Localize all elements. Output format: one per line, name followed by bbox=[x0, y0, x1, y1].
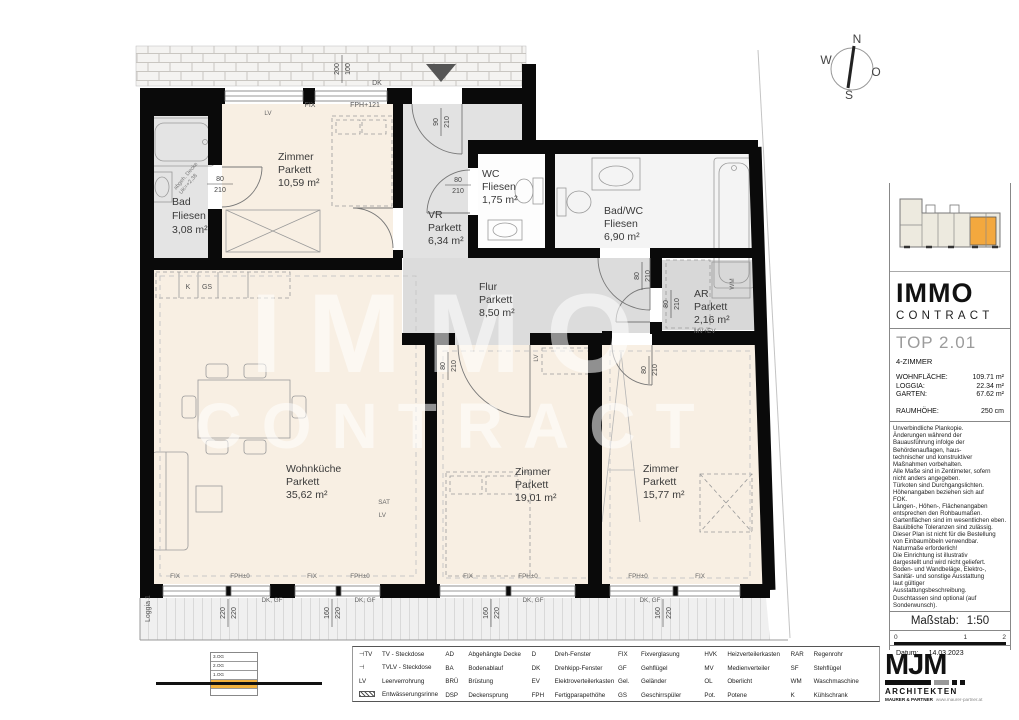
svg-text:100: 100 bbox=[345, 63, 352, 75]
svg-text:19,01 m²: 19,01 m² bbox=[515, 492, 557, 504]
svg-text:10,59 m²: 10,59 m² bbox=[278, 177, 320, 189]
highlighted-unit bbox=[970, 217, 996, 245]
architect-url: www.maurer-partner.at bbox=[936, 697, 982, 702]
svg-text:220: 220 bbox=[666, 607, 673, 619]
scale-label: Maßstab: bbox=[911, 615, 959, 627]
label-geschirrspueler: GS bbox=[202, 284, 212, 291]
label-sat: SAT bbox=[378, 499, 390, 506]
svg-text:210: 210 bbox=[674, 298, 681, 310]
svg-text:210: 210 bbox=[444, 116, 451, 128]
compass-south: S bbox=[845, 88, 853, 102]
unit-type: 4-ZIMMER bbox=[896, 357, 1004, 366]
legend-col-1: ⊣TVTV - Steckdose ⊣TVLV - Steckdose LVLe… bbox=[359, 651, 445, 699]
svg-text:FIX: FIX bbox=[170, 573, 181, 580]
svg-text:1,75 m²: 1,75 m² bbox=[482, 194, 518, 206]
architect-partner-line: MAURER & PARTNERwww.maurer-partner.at bbox=[885, 697, 1017, 702]
svg-text:Fliesen: Fliesen bbox=[482, 181, 516, 193]
svg-text:35,62 m²: 35,62 m² bbox=[286, 489, 328, 501]
svg-text:160: 160 bbox=[324, 607, 331, 619]
svg-text:220: 220 bbox=[494, 607, 501, 619]
architect-block: MJM ARCHITEKTEN MAURER & PARTNERwww.maur… bbox=[885, 652, 1017, 702]
svg-text:Parkett: Parkett bbox=[479, 294, 512, 306]
immo-contract-logo: IMMO CONTRACT bbox=[890, 272, 1010, 328]
room-label-badwc: Bad/WC Fliesen 6,90 m² bbox=[604, 205, 644, 243]
stat-raumhoehe: RAUMHÖHE: 250 cm bbox=[896, 408, 1004, 417]
label-lv-3: LV bbox=[533, 354, 540, 362]
compass-east: O bbox=[871, 65, 880, 79]
stat-wohnflaeche: WOHNFLÄCHE: 109.71 m² bbox=[896, 374, 1004, 383]
floor-row-3og: 3.OG bbox=[211, 653, 257, 662]
floor-row-1og: 1.OG bbox=[211, 671, 257, 680]
svg-text:220: 220 bbox=[220, 607, 227, 619]
svg-text:Parkett: Parkett bbox=[278, 164, 311, 176]
svg-text:WC: WC bbox=[482, 168, 500, 180]
label-fix-top: FIX bbox=[305, 102, 316, 109]
svg-text:160: 160 bbox=[655, 607, 662, 619]
abbreviation-legend: ⊣TVTV - Steckdose ⊣TVLV - Steckdose LVLe… bbox=[352, 646, 880, 702]
legend-col-5: HVKHeizverteilerkasten MVMedienverteiler… bbox=[704, 651, 790, 699]
svg-text:Parkett: Parkett bbox=[694, 301, 727, 313]
svg-text:VR: VR bbox=[428, 209, 443, 221]
floorplan-page: IMMO CONTRACT Zimmer Parkett 10,59 m² Ba… bbox=[0, 0, 1019, 720]
svg-text:Zimmer: Zimmer bbox=[515, 466, 551, 478]
svg-text:2,16 m²: 2,16 m² bbox=[694, 314, 730, 326]
logo-contract: CONTRACT bbox=[896, 310, 1006, 322]
site-plan-thumbnail bbox=[890, 183, 1010, 272]
svg-text:80: 80 bbox=[440, 362, 447, 370]
scale-box: Maßstab: 1:50 bbox=[890, 611, 1010, 631]
svg-text:AR: AR bbox=[694, 288, 709, 300]
svg-text:Parkett: Parkett bbox=[428, 222, 461, 234]
svg-text:90: 90 bbox=[433, 118, 440, 126]
label-kuehlschrank: K bbox=[186, 284, 191, 291]
label-lv-2: LV bbox=[379, 512, 387, 519]
svg-text:160: 160 bbox=[483, 607, 490, 619]
svg-text:Bad/WC: Bad/WC bbox=[604, 205, 644, 217]
label-loggia: Loggia 1 bbox=[145, 595, 152, 622]
floor-row-kg bbox=[211, 689, 257, 695]
svg-text:DK, GF: DK, GF bbox=[523, 597, 544, 604]
svg-text:Parkett: Parkett bbox=[286, 476, 319, 488]
svg-text:FPH±0: FPH±0 bbox=[350, 573, 370, 580]
scale-value: 1:50 bbox=[967, 615, 989, 627]
svg-text:3,08 m²: 3,08 m² bbox=[172, 224, 208, 236]
svg-text:DK, GF: DK, GF bbox=[355, 597, 376, 604]
svg-text:Zimmer: Zimmer bbox=[278, 151, 314, 163]
svg-text:220: 220 bbox=[335, 607, 342, 619]
svg-text:Zimmer: Zimmer bbox=[643, 463, 679, 475]
label-lv-1: LV bbox=[264, 110, 272, 117]
svg-text:80: 80 bbox=[454, 177, 462, 184]
svg-text:Parkett: Parkett bbox=[515, 479, 548, 491]
title-block-sidebar: IMMO CONTRACT TOP 2.01 4-ZIMMER WOHNFLÄC… bbox=[889, 183, 1011, 650]
legend-col-6: RARRegenrohr SFStehflügel WMWaschmaschin… bbox=[791, 651, 877, 699]
stat-loggia: LOGGIA: 22.34 m² bbox=[896, 383, 1004, 392]
architect-title: ARCHITEKTEN bbox=[885, 687, 1017, 696]
svg-text:FIX: FIX bbox=[463, 573, 474, 580]
svg-text:Flur: Flur bbox=[479, 281, 498, 293]
ground-line bbox=[156, 682, 322, 685]
floorplan-drawing: IMMO CONTRACT Zimmer Parkett 10,59 m² Ba… bbox=[0, 0, 890, 650]
svg-text:210: 210 bbox=[452, 188, 464, 195]
legend-col-3: DDreh-Fenster DKDrehkipp-Fenster EVElekt… bbox=[532, 651, 618, 699]
label-wm: WM bbox=[729, 278, 736, 289]
logo-immo: IMMO bbox=[896, 280, 1006, 307]
svg-text:FIX: FIX bbox=[695, 573, 706, 580]
svg-text:Fliesen: Fliesen bbox=[172, 210, 206, 222]
svg-text:210: 210 bbox=[451, 360, 458, 372]
unit-info-box: TOP 2.01 4-ZIMMER WOHNFLÄCHE: 109.71 m² … bbox=[890, 328, 1010, 422]
legend-col-4: FIXFixverglasung GFGehflügel Gel.Gelände… bbox=[618, 651, 704, 699]
svg-text:DK, GF: DK, GF bbox=[640, 597, 661, 604]
svg-text:6,90 m²: 6,90 m² bbox=[604, 231, 640, 243]
svg-text:DK, GF: DK, GF bbox=[262, 597, 283, 604]
ar-note: MV+EV bbox=[694, 328, 716, 335]
floor-row-2og: 2.OG bbox=[211, 662, 257, 671]
svg-text:FIX: FIX bbox=[307, 573, 318, 580]
label-fph121: FPH+121 bbox=[350, 102, 380, 109]
svg-text:FPH±0: FPH±0 bbox=[628, 573, 648, 580]
svg-text:200: 200 bbox=[334, 63, 341, 75]
svg-text:220: 220 bbox=[231, 607, 238, 619]
tv-outlet-symbol: ⊣TV bbox=[359, 651, 382, 658]
svg-text:Bad: Bad bbox=[172, 196, 191, 208]
plan-disclaimer: Unverbindliche Plankopie. Änderungen wäh… bbox=[890, 422, 1010, 608]
svg-text:210: 210 bbox=[652, 364, 659, 376]
watermark-line1: IMMO bbox=[251, 271, 660, 396]
compass-north: N bbox=[853, 32, 862, 46]
mjm-logo-bars bbox=[885, 680, 1017, 685]
tvlv-outlet-symbol: ⊣ bbox=[359, 664, 382, 671]
legend-col-2: ADAbgehängte Decke BABodenablauf BRÜBrüs… bbox=[445, 651, 531, 699]
svg-text:Parkett: Parkett bbox=[643, 476, 676, 488]
svg-text:Fliesen: Fliesen bbox=[604, 218, 638, 230]
svg-text:FPH±0: FPH±0 bbox=[230, 573, 250, 580]
compass-west: W bbox=[820, 53, 832, 67]
exterior-brick-facade bbox=[136, 46, 526, 86]
drain-channel-symbol bbox=[359, 691, 382, 699]
svg-text:80: 80 bbox=[641, 366, 648, 374]
label-dk-top: DK bbox=[372, 80, 382, 87]
svg-text:80: 80 bbox=[216, 176, 224, 183]
building-section-floor-stack: 3.OG 2.OG 1.OG EG bbox=[210, 652, 258, 696]
stat-garten: GARTEN: 67.62 m² bbox=[896, 391, 1004, 400]
unit-title: TOP 2.01 bbox=[896, 333, 1004, 353]
svg-text:8,50 m²: 8,50 m² bbox=[479, 307, 515, 319]
compass: N W O S bbox=[820, 32, 880, 102]
svg-text:6,34 m²: 6,34 m² bbox=[428, 235, 464, 247]
svg-text:80: 80 bbox=[634, 272, 641, 280]
svg-text:210: 210 bbox=[645, 270, 652, 282]
scale-bar: 0 1 2 bbox=[890, 631, 1010, 645]
svg-text:210: 210 bbox=[214, 187, 226, 194]
svg-text:15,77 m²: 15,77 m² bbox=[643, 489, 685, 501]
watermark-line2: CONTRACT bbox=[195, 390, 714, 462]
svg-text:80: 80 bbox=[663, 300, 670, 308]
mjm-logo: MJM bbox=[885, 652, 1017, 678]
svg-text:Wohnküche: Wohnküche bbox=[286, 463, 341, 475]
svg-text:FPH±0: FPH±0 bbox=[518, 573, 538, 580]
